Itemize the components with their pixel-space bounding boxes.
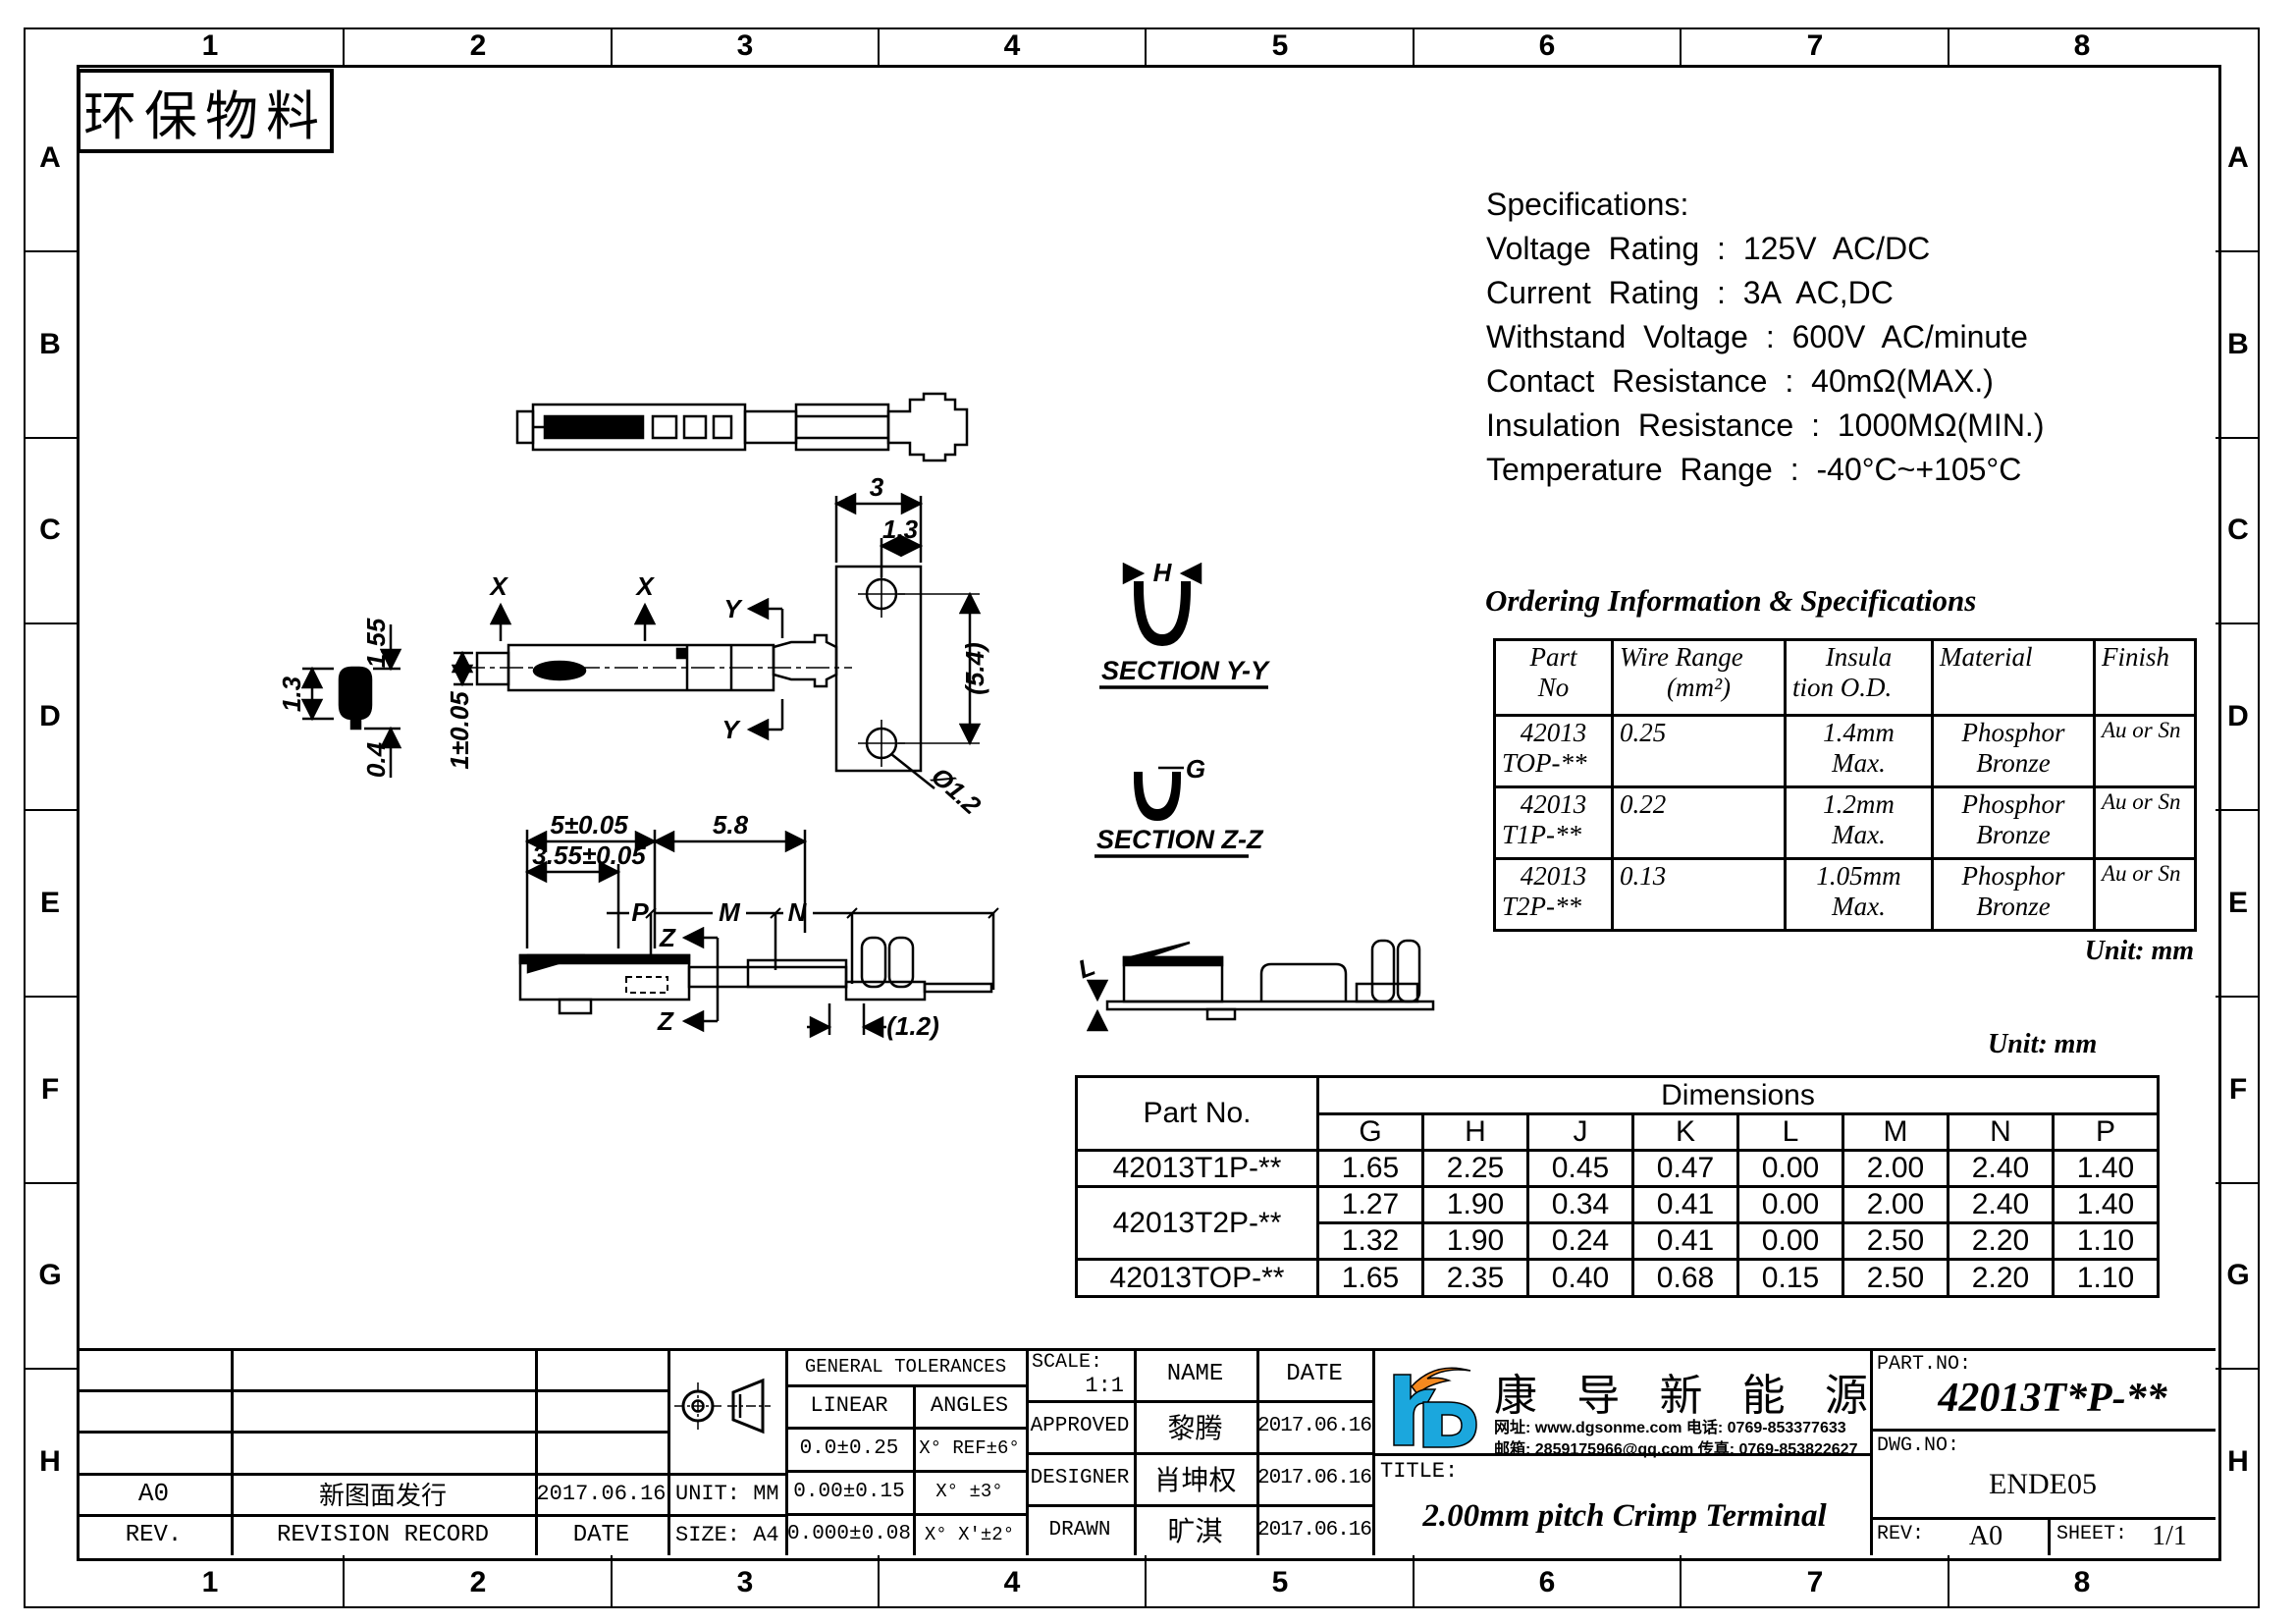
part-suffix: TOP-**: [1502, 748, 1605, 779]
ordering-header-row: PartNo Wire Range(mm²) Insulation O.D. M…: [1495, 640, 2196, 716]
dims-row: 42013T2P-** 1.27 1.90 0.34 0.41 0.00 2.0…: [1077, 1187, 2159, 1223]
col-label-bot-8: 8: [2074, 1566, 2091, 1599]
material-1: Phosphor: [1940, 861, 2087, 892]
dims-value: 2.50: [1843, 1223, 1949, 1260]
material-2: Bronze: [1940, 748, 2087, 779]
dims-value: 0.47: [1633, 1151, 1738, 1187]
insulation-max: Max.: [1792, 748, 1925, 779]
company-logo: [1382, 1353, 1486, 1449]
general-tolerances-header: GENERAL TOLERANCES: [785, 1348, 1026, 1384]
dims-value: 1.32: [1318, 1223, 1423, 1260]
row-label-right-g: G: [2226, 1259, 2249, 1292]
row-label-right-f: F: [2229, 1073, 2247, 1107]
spec-line: Withstand Voltage : 600V AC/minute: [1486, 315, 2044, 359]
dims-col: H: [1423, 1114, 1528, 1151]
dims-value: 2.40: [1949, 1151, 2054, 1187]
ordering-title: Ordering Information & Specifications: [1485, 583, 1976, 619]
row-label-right-h: H: [2227, 1445, 2249, 1479]
dims-value: 2.00: [1843, 1187, 1949, 1223]
dims-value: 1.40: [2054, 1187, 2159, 1223]
dims-value: 2.00: [1843, 1151, 1949, 1187]
linear-header: LINEAR: [785, 1384, 913, 1427]
unit-note-dimensions: Unit: mm: [1988, 1029, 2097, 1060]
col-label-top-2: 2: [470, 29, 487, 63]
dims-col: P: [2054, 1114, 2159, 1151]
dims-col: L: [1738, 1114, 1843, 1151]
angles-header: ANGLES: [913, 1384, 1026, 1427]
rev-value: A0: [77, 1473, 231, 1514]
part-no: 42013: [1502, 718, 1605, 748]
rev-field-value: A0: [1924, 1517, 2048, 1555]
dims-row: 42013T1P-** 1.65 2.25 0.45 0.47 0.00 2.0…: [1077, 1151, 2159, 1187]
dims-group-header-row: Part No. Dimensions: [1077, 1077, 2159, 1114]
ordering-header-finish: Finish: [2095, 640, 2196, 716]
revision-date: 2017.06.16: [535, 1473, 667, 1514]
ordering-header-part2: No: [1502, 673, 1605, 703]
insulation-od: 1.05mm: [1792, 861, 1925, 892]
spec-line: Insulation Resistance : 1000MΩ(MIN.): [1486, 404, 2044, 448]
logo-d: [1423, 1402, 1476, 1447]
revision-desc: 新图面发行: [231, 1473, 535, 1514]
tolerance-linear-2: 0.00±0.15: [785, 1470, 913, 1513]
insulation-max: Max.: [1792, 820, 1925, 850]
scale-field: SCALE: 1:1: [1026, 1348, 1134, 1400]
company-contact-1: 网址: www.dgsonme.com 电话: 0769-853377633: [1494, 1414, 1846, 1437]
size-field: SIZE: A4: [667, 1514, 793, 1555]
col-label-top-5: 5: [1272, 29, 1289, 63]
scale-label: SCALE:: [1026, 1348, 1134, 1374]
col-label-bot-5: 5: [1272, 1566, 1289, 1599]
material-1: Phosphor: [1940, 789, 2087, 820]
dims-part: 42013TOP-**: [1077, 1260, 1318, 1297]
drawing-sheet: 1.3 1.55 0.4 X X Y Y 1±0.05 3 1.3 (5.4) …: [0, 0, 2296, 1624]
finish: Au or Sn: [2095, 859, 2196, 931]
dims-value: 2.35: [1423, 1260, 1528, 1297]
date-col-header2: DATE: [1256, 1348, 1372, 1400]
col-label-top-6: 6: [1539, 29, 1556, 63]
unit-field: UNIT: MM: [667, 1473, 793, 1514]
col-label-top-8: 8: [2074, 29, 2091, 63]
dims-value: 1.10: [2054, 1260, 2159, 1297]
drawing-title: 2.00mm pitch Crimp Terminal: [1394, 1490, 1855, 1542]
part-suffix: T1P-**: [1502, 820, 1605, 850]
dims-col: J: [1528, 1114, 1633, 1151]
dims-row: 42013TOP-** 1.65 2.35 0.40 0.68 0.15 2.5…: [1077, 1260, 2159, 1297]
part-no: 42013: [1502, 861, 1605, 892]
dims-col: G: [1318, 1114, 1423, 1151]
row-label-left-e: E: [40, 887, 60, 920]
approved-date: 2017.06.16: [1256, 1400, 1372, 1452]
dwgno-value: ENDE05: [1870, 1465, 2216, 1504]
dims-value: 0.41: [1633, 1223, 1738, 1260]
finish: Au or Sn: [2095, 787, 2196, 859]
drawn-label: DRAWN: [1026, 1504, 1134, 1555]
tolerance-angle-3: X° X'±2°: [913, 1513, 1026, 1555]
ordering-header-insulation2: tion O.D.: [1792, 673, 1925, 703]
dims-value: 2.40: [1949, 1187, 2054, 1223]
dims-col: K: [1633, 1114, 1738, 1151]
col-label-top-7: 7: [1807, 29, 1824, 63]
tolerance-angle-2: X° ±3°: [913, 1470, 1026, 1513]
row-label-left-f: F: [41, 1073, 59, 1107]
dims-value: 1.40: [2054, 1151, 2159, 1187]
ordering-table: PartNo Wire Range(mm²) Insulation O.D. M…: [1493, 638, 2197, 932]
col-label-bot-2: 2: [470, 1566, 487, 1599]
dims-value: 0.00: [1738, 1151, 1843, 1187]
row-label-left-h: H: [39, 1445, 61, 1479]
col-label-bot-1: 1: [202, 1566, 219, 1599]
dims-value: 2.25: [1423, 1151, 1528, 1187]
dims-value: 0.00: [1738, 1187, 1843, 1223]
row-label-left-g: G: [38, 1259, 61, 1292]
material-2: Bronze: [1940, 892, 2087, 922]
dims-value: 2.20: [1949, 1223, 2054, 1260]
col-label-bot-7: 7: [1807, 1566, 1824, 1599]
third-angle-projection-icon: [672, 1375, 780, 1437]
company-contact-2: 邮箱: 2859175966@qq.com 传真: 0769-853822627: [1494, 1435, 1857, 1459]
material-2: Bronze: [1940, 820, 2087, 850]
dims-value: 2.50: [1843, 1260, 1949, 1297]
col-label-bot-4: 4: [1004, 1566, 1021, 1599]
col-label-bot-3: 3: [737, 1566, 754, 1599]
wire-range: 0.25: [1613, 716, 1786, 787]
dims-value: 1.65: [1318, 1151, 1423, 1187]
approved-name: 黎腾: [1134, 1400, 1256, 1452]
partno-value: 42013T*P-**: [1890, 1371, 2216, 1425]
col-label-top-1: 1: [202, 29, 219, 63]
part-no: 42013: [1502, 789, 1605, 820]
row-label-right-e: E: [2228, 887, 2248, 920]
specifications-title: Specifications:: [1486, 183, 2044, 227]
part-suffix: T2P-**: [1502, 892, 1605, 922]
col-label-bot-6: 6: [1539, 1566, 1556, 1599]
drawn-date: 2017.06.16: [1256, 1504, 1372, 1555]
dims-value: 1.65: [1318, 1260, 1423, 1297]
designer-label: DESIGNER: [1026, 1452, 1134, 1504]
approved-label: APPROVED: [1026, 1400, 1134, 1452]
row-label-right-d: D: [2227, 700, 2249, 733]
ordering-row: 42013T2P-** 0.13 1.05mmMax. PhosphorBron…: [1495, 859, 2196, 931]
dimensions-table: Part No. Dimensions G H J K L M N P 4201…: [1075, 1075, 2160, 1298]
ordering-header-material: Material: [1933, 640, 2095, 716]
material-1: Phosphor: [1940, 718, 2087, 748]
dims-value: 0.00: [1738, 1223, 1843, 1260]
dims-part: 42013T2P-**: [1077, 1187, 1318, 1260]
insulation-od: 1.2mm: [1792, 789, 1925, 820]
wire-range: 0.22: [1613, 787, 1786, 859]
rev-col-header: REV.: [77, 1514, 231, 1555]
col-label-top-4: 4: [1004, 29, 1021, 63]
specifications-block: Specifications: Voltage Rating : 125V AC…: [1486, 183, 2044, 492]
ordering-header-insulation: Insula: [1792, 642, 1925, 673]
row-label-right-a: A: [2227, 141, 2249, 175]
row-label-right-b: B: [2227, 328, 2249, 361]
dims-value: 1.27: [1318, 1187, 1423, 1223]
dims-value: 1.10: [2054, 1223, 2159, 1260]
ordering-row: 42013T1P-** 0.22 1.2mmMax. PhosphorBronz…: [1495, 787, 2196, 859]
spec-line: Voltage Rating : 125V AC/DC: [1486, 227, 2044, 271]
row-label-left-d: D: [39, 700, 61, 733]
ordering-header-wire2: (mm²): [1620, 673, 1778, 703]
drawn-name: 旷淇: [1134, 1504, 1256, 1555]
dims-value: 0.15: [1738, 1260, 1843, 1297]
tolerance-angle-1: X° REF±6°: [913, 1427, 1026, 1470]
dims-group-header: Dimensions: [1318, 1077, 2159, 1114]
dims-value: 0.34: [1528, 1187, 1633, 1223]
tolerance-linear-3: 0.000±0.08: [785, 1513, 913, 1555]
spec-line: Current Rating : 3A AC,DC: [1486, 271, 2044, 315]
ordering-header-part: Part: [1502, 642, 1605, 673]
dims-value: 0.24: [1528, 1223, 1633, 1260]
wire-range: 0.13: [1613, 859, 1786, 931]
dims-part: 42013T1P-**: [1077, 1151, 1318, 1187]
finish: Au or Sn: [2095, 716, 2196, 787]
rev-label: REV:: [1877, 1523, 1924, 1545]
revision-record-header: REVISION RECORD: [231, 1514, 535, 1555]
sheet-value: 1/1: [2130, 1517, 2209, 1555]
dims-value: 0.45: [1528, 1151, 1633, 1187]
title-label: TITLE:: [1380, 1459, 1458, 1484]
spec-line: Temperature Range : -40°C~+105°C: [1486, 448, 2044, 492]
dims-col: M: [1843, 1114, 1949, 1151]
tolerance-linear-1: 0.0±0.25: [785, 1427, 913, 1470]
row-label-left-a: A: [39, 141, 61, 175]
dims-value: 0.40: [1528, 1260, 1633, 1297]
dims-value: 2.20: [1949, 1260, 2054, 1297]
dims-col: N: [1949, 1114, 2054, 1151]
unit-note-ordering: Unit: mm: [2061, 936, 2194, 967]
date-col-header: DATE: [535, 1514, 667, 1555]
name-col-header: NAME: [1134, 1348, 1256, 1400]
row-label-right-c: C: [2227, 514, 2249, 547]
insulation-od: 1.4mm: [1792, 718, 1925, 748]
ordering-row: 42013TOP-** 0.25 1.4mmMax. PhosphorBronz…: [1495, 716, 2196, 787]
ordering-header-wire: Wire Range: [1620, 642, 1778, 673]
dims-value: 1.90: [1423, 1187, 1528, 1223]
spec-line: Contact Resistance : 40mΩ(MAX.): [1486, 359, 2044, 404]
eco-material-stamp: 环保物料: [77, 69, 334, 153]
scale-value: 1:1: [1026, 1374, 1134, 1398]
dims-value: 0.68: [1633, 1260, 1738, 1297]
sheet-label: SHEET:: [2056, 1523, 2127, 1545]
row-label-left-c: C: [39, 514, 61, 547]
designer-name: 肖坤权: [1134, 1452, 1256, 1504]
insulation-max: Max.: [1792, 892, 1925, 922]
dims-value: 1.90: [1423, 1223, 1528, 1260]
dims-part-header: Part No.: [1077, 1077, 1318, 1151]
col-label-top-3: 3: [737, 29, 754, 63]
dims-value: 0.41: [1633, 1187, 1738, 1223]
designer-date: 2017.06.16: [1256, 1452, 1372, 1504]
row-label-left-b: B: [39, 328, 61, 361]
dwgno-label: DWG.NO:: [1877, 1435, 1959, 1457]
